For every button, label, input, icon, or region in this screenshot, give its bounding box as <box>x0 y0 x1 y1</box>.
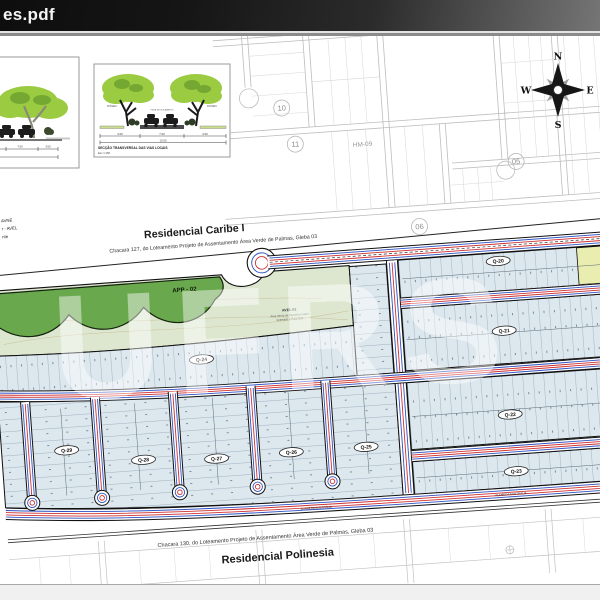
label-q28: Q-28 <box>138 457 150 464</box>
label-q21: Q-21 <box>498 328 510 335</box>
legend-line-1: AVNE <box>1 218 13 224</box>
bg-block-11: 11 <box>291 139 299 149</box>
compass-w: W <box>520 86 532 97</box>
label-q23: Q-23 <box>511 469 523 476</box>
window-titlebar[interactable]: es.pdf <box>0 0 600 31</box>
polinesia-title: Residencial Polinesia <box>221 546 335 566</box>
section-caption: SECÇÃO TRANSVERSAL DAS VIAS LOCAIS <box>98 145 168 150</box>
site-plan-drawing: 10 11 05 06 HM-09 <box>0 0 600 600</box>
pdf-filename: es.pdf <box>3 5 55 25</box>
compass-e: E <box>586 86 593 97</box>
pista-label: PISTA DE ROLAMENTO <box>151 109 174 112</box>
label-q20: Q-20 <box>492 258 504 265</box>
dim-left: 3.00 <box>117 132 123 136</box>
bg-block-hm09: HM-09 <box>353 141 373 149</box>
cross-section-box-1: 7.00 3.00 <box>0 57 79 168</box>
passeio-right-label: PASSEIO <box>207 105 217 108</box>
bg-block-05: 05 <box>512 157 521 167</box>
background-block-numbers: 10 11 05 06 HM-09 <box>273 83 529 244</box>
compass-n: N <box>554 52 563 63</box>
cross-section-box-2: PASSEIO PISTA DE ROLAMENTO PASSEIO 3.00 … <box>94 64 230 157</box>
titlebar-seam-dark <box>0 33 600 36</box>
compass-s: S <box>555 120 562 131</box>
bg-block-06: 06 <box>415 222 424 232</box>
caribe-title: Residencial Caribe I <box>144 222 245 241</box>
dim-7: 7.00 <box>17 145 23 149</box>
label-q22: Q-22 <box>504 412 516 419</box>
label-q27: Q-27 <box>211 456 223 463</box>
dim-3: 3.00 <box>45 145 51 149</box>
bg-block-10: 10 <box>277 103 286 113</box>
dim-right: 3.00 <box>202 132 208 136</box>
legend-line-2: r - AVEL <box>1 225 18 231</box>
legend-fragments: AVNE r - AVEL nte <box>1 217 19 239</box>
dim-total: 13.00 <box>160 138 167 142</box>
pdf-viewer-window: 10 11 05 06 HM-09 <box>0 0 600 600</box>
label-q29: Q-29 <box>61 448 73 455</box>
section-scale: Esc 1:150 <box>98 151 110 155</box>
passeio-left-label: PASSEIO <box>107 105 117 108</box>
page-bottom-margin <box>0 584 600 600</box>
dim-mid: 7.00 <box>159 132 165 136</box>
label-q25: Q-25 <box>360 444 372 451</box>
legend-line-3: nte <box>2 234 9 239</box>
plan-sheet: 10 11 05 06 HM-09 <box>0 0 600 600</box>
label-q24: Q-24 <box>196 357 208 364</box>
label-q26: Q-26 <box>286 450 298 457</box>
